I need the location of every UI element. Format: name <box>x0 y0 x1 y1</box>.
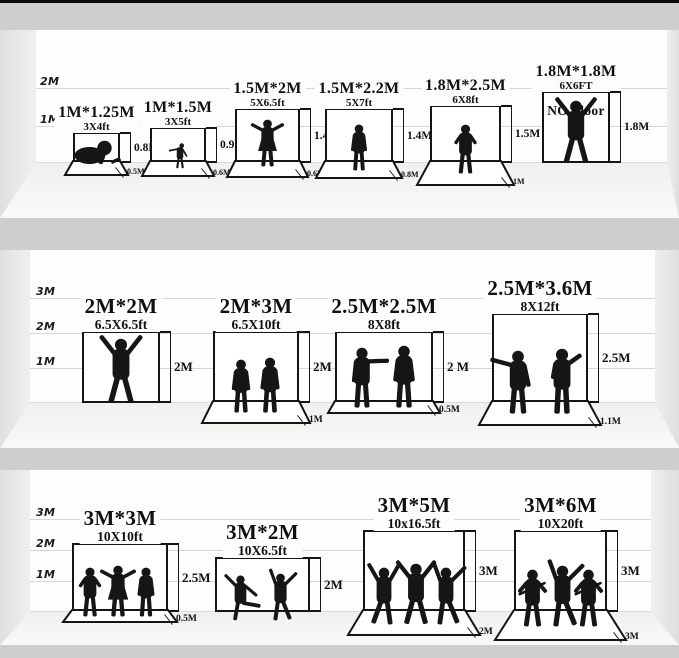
height-dimension-label: 2.5M <box>602 350 631 366</box>
height-dimension-line: 0.9M <box>206 127 217 163</box>
silhouette-man-hands-on-hips <box>430 53 501 173</box>
meter-axis-label: 1M <box>36 355 55 368</box>
floor-depth-label: 3M <box>625 632 639 642</box>
floor-depth-label: 1M <box>309 415 323 425</box>
height-dimension-line: 3M <box>465 530 476 612</box>
silhouette-two-dancers <box>215 500 310 620</box>
height-dimension-line: 2.5M <box>168 543 179 612</box>
height-dimension-line: 2 M <box>433 331 444 403</box>
meter-axis-label: 2M <box>36 537 55 550</box>
height-dimension-label: 3M <box>479 563 498 579</box>
separator-band <box>0 645 679 658</box>
backdrop-item: 2M*3M6.5X10ft1M2M <box>213 331 299 403</box>
separator-band <box>0 448 679 470</box>
height-dimension-line: 2M <box>160 331 171 403</box>
silhouette-three-adults <box>72 496 168 616</box>
size-row-medium: 3M2M1M2M*2M6.5X6.5ft2M2M*3M6.5X10ft1M2M2… <box>0 250 679 448</box>
height-dimension-label: 2.5M <box>182 570 211 586</box>
height-dimension-label: 2 M <box>447 359 469 375</box>
backdrop-item: 2.5M*3.6M8X12ft1.1M2.5M <box>492 313 588 403</box>
height-dimension-line: 2.5M <box>588 313 599 403</box>
silhouette-two-men-gesturing <box>492 293 588 413</box>
backdrop-item: 3M*5M10x16.5ft2M3M <box>363 530 465 612</box>
height-dimension-label: 1.8M <box>624 121 649 133</box>
meter-axis-label: 3M <box>36 285 55 298</box>
silhouette-woman-arms-up <box>235 46 300 166</box>
height-dimension-line: 1.5M <box>501 105 512 163</box>
height-dimension-line: 3M <box>607 530 618 612</box>
height-dimension-line: 2M <box>310 557 321 612</box>
height-dimension-line: 1.8M <box>610 91 621 163</box>
silhouette-two-men-standing <box>213 292 299 412</box>
height-dimension-label: 3M <box>621 563 640 579</box>
silhouette-crawling-baby <box>73 46 120 166</box>
size-row-large: 3M2M1M3M*3M10X10ft0.5M2.5M3M*2M10X6.5ft2… <box>0 470 679 645</box>
height-dimension-label: 1.5M <box>515 128 540 140</box>
meter-axis-label: 2M <box>36 320 55 333</box>
backdrop-item: 1.8M*1.8M6X6FTNO Floor1.8M <box>542 91 610 163</box>
height-dimension-line: 2M <box>299 331 310 403</box>
backdrop-item: 3M*3M10X10ft0.5M2.5M <box>72 543 168 612</box>
silhouette-man-standing <box>325 50 393 170</box>
backdrop-size-chart: 2M1M1M*1.25M3X4ft0.5M0.8M1M*1.5M3X5ft0.6… <box>0 0 679 658</box>
silhouette-man-arms-up <box>82 283 160 403</box>
height-dimension-line: 1.4M <box>393 108 404 163</box>
floor-depth-label: 1M <box>513 177 525 186</box>
meter-axis-label: 3M <box>36 506 55 519</box>
size-row-small: 2M1M1M*1.25M3X4ft0.5M0.8M1M*1.5M3X5ft0.6… <box>0 30 679 218</box>
backdrop-item: 1.8M*2.5M6X8ft1M1.5M <box>430 105 501 163</box>
backdrop-item: 1M*1.5M3X5ft0.6M0.9M <box>150 127 206 163</box>
backdrop-item: 3M*6M10X20ft3M3M <box>514 530 607 612</box>
separator-band <box>0 3 679 30</box>
backdrop-item: 2.5M*2.5M8X8ft0.5M2 M <box>335 331 433 403</box>
height-dimension-label: 2M <box>324 577 343 593</box>
floor-depth-label: 0.5M <box>439 405 460 415</box>
silhouette-toddler <box>150 48 206 168</box>
backdrop-item: 1.5M*2.2M5X7ft0.8M1.4M <box>325 108 393 163</box>
backdrop-item: 3M*2M10X6.5ft2M <box>215 557 310 612</box>
silhouette-three-dancers <box>363 504 465 624</box>
height-dimension-line: 0.8M <box>120 132 131 163</box>
height-dimension-label: 2M <box>313 359 332 375</box>
height-dimension-label: 2M <box>174 359 193 375</box>
no-floor-label: NO Floor <box>544 103 608 119</box>
floor-depth-label: 0.5M <box>176 614 197 624</box>
meter-axis-label: 1M <box>36 568 55 581</box>
backdrop-item: 1M*1.25M3X4ft0.5M0.8M <box>73 132 120 163</box>
backdrop-item: 1.5M*2M5X6.5ft0.6M1.4M <box>235 108 300 163</box>
separator-band <box>0 218 679 250</box>
backdrop-item: 2M*2M6.5X6.5ft2M <box>82 331 160 403</box>
meter-axis-label: 2M <box>40 75 59 88</box>
floor-depth-label: 1.1M <box>600 417 621 427</box>
height-dimension-line: 1.4M <box>300 108 311 163</box>
silhouette-two-men-talking <box>335 287 433 407</box>
height-dimension-label: 1.4M <box>407 130 432 142</box>
floor-depth-label: 2M <box>479 627 493 637</box>
silhouette-rock-band <box>514 506 607 626</box>
